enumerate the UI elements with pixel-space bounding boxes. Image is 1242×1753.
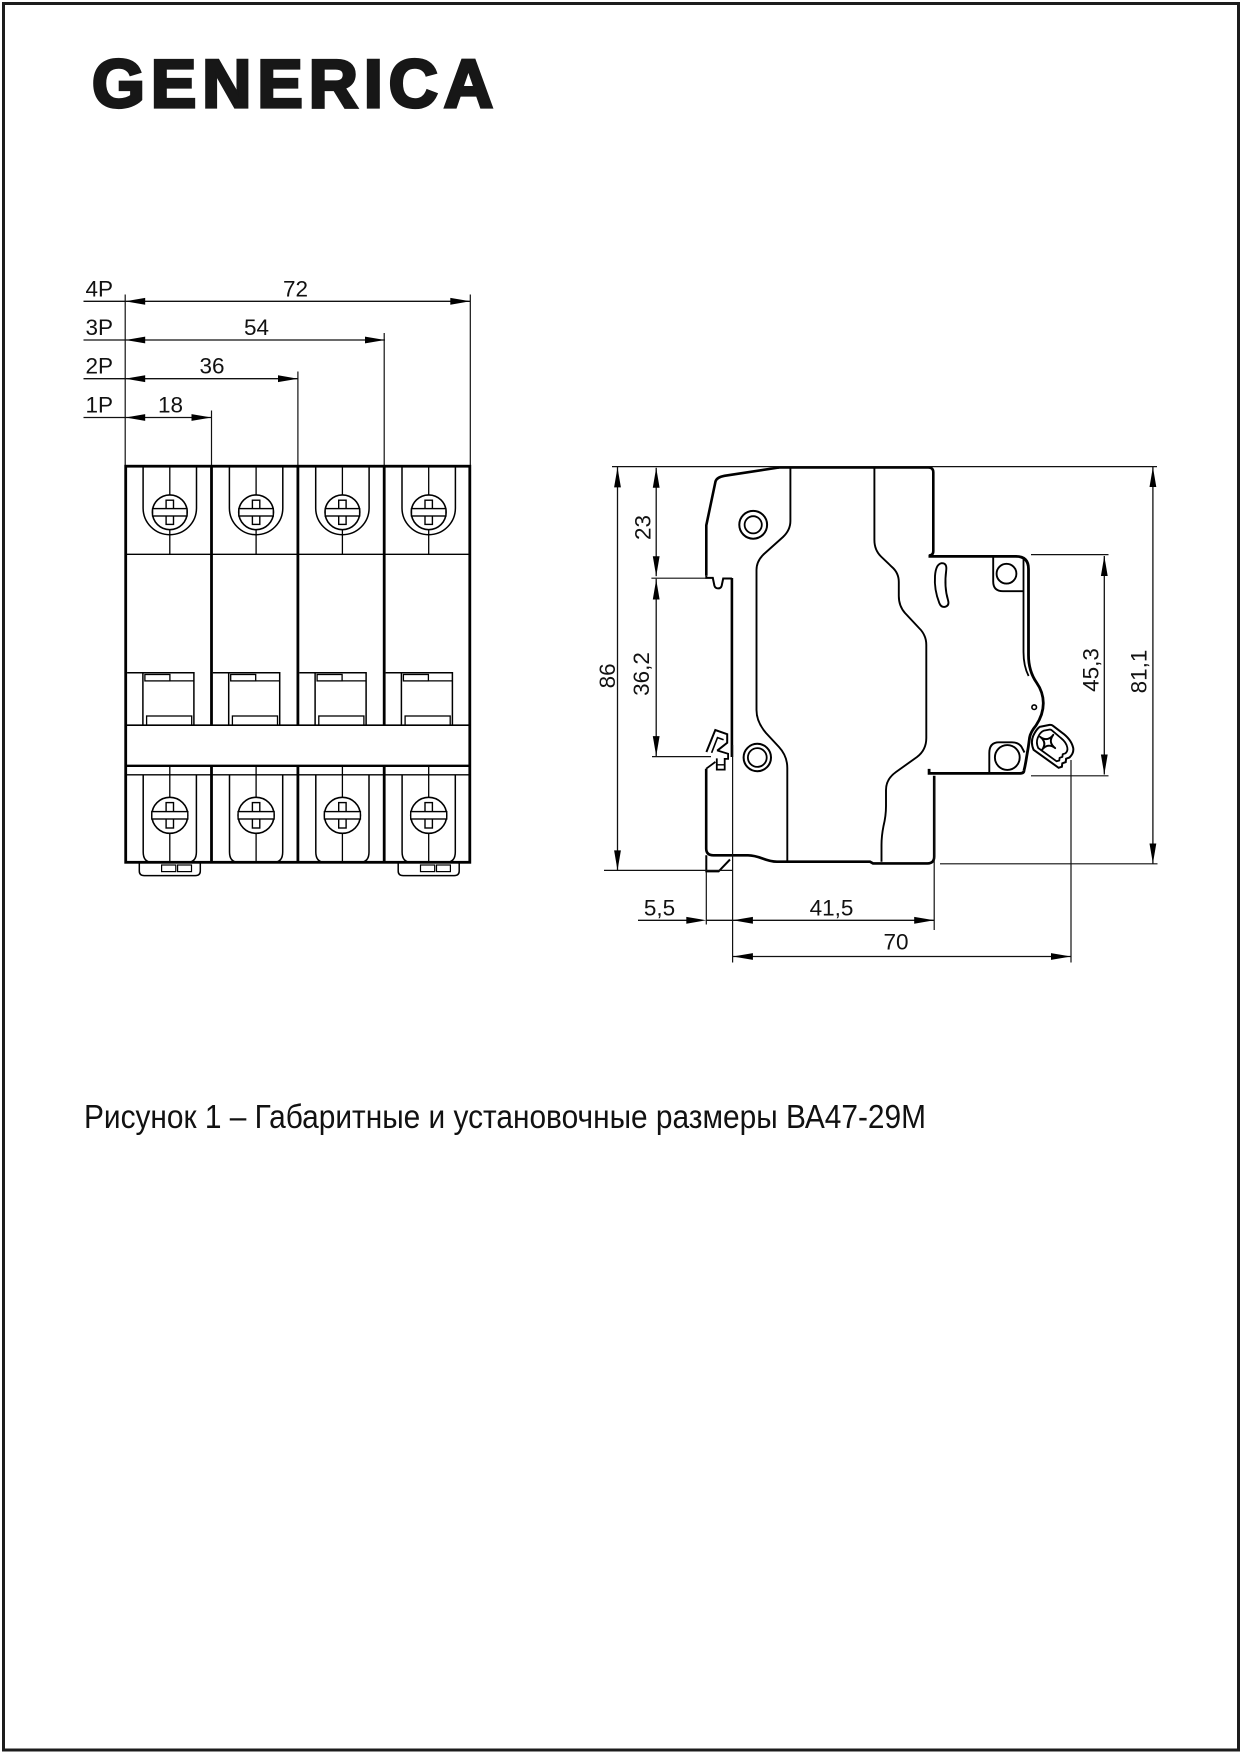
svg-text:1P: 1P [86, 393, 114, 418]
svg-text:41,5: 41,5 [810, 895, 854, 920]
svg-text:18: 18 [158, 393, 183, 418]
svg-text:3P: 3P [86, 315, 114, 340]
svg-text:81,1: 81,1 [1126, 650, 1151, 694]
svg-text:86: 86 [595, 663, 620, 688]
svg-text:36,2: 36,2 [629, 652, 654, 696]
svg-text:23: 23 [631, 515, 656, 540]
svg-text:2P: 2P [86, 354, 114, 379]
svg-text:Рисунок 1 – Габаритные и устан: Рисунок 1 – Габаритные и установочные ра… [84, 1098, 926, 1135]
svg-text:70: 70 [883, 930, 908, 955]
svg-text:36: 36 [199, 354, 224, 379]
svg-text:4P: 4P [86, 276, 114, 301]
svg-text:5,5: 5,5 [644, 895, 675, 920]
svg-text:54: 54 [244, 315, 269, 340]
svg-text:45,3: 45,3 [1078, 648, 1103, 692]
svg-text:72: 72 [283, 276, 308, 301]
svg-text:GENERICA: GENERICA [92, 46, 499, 122]
